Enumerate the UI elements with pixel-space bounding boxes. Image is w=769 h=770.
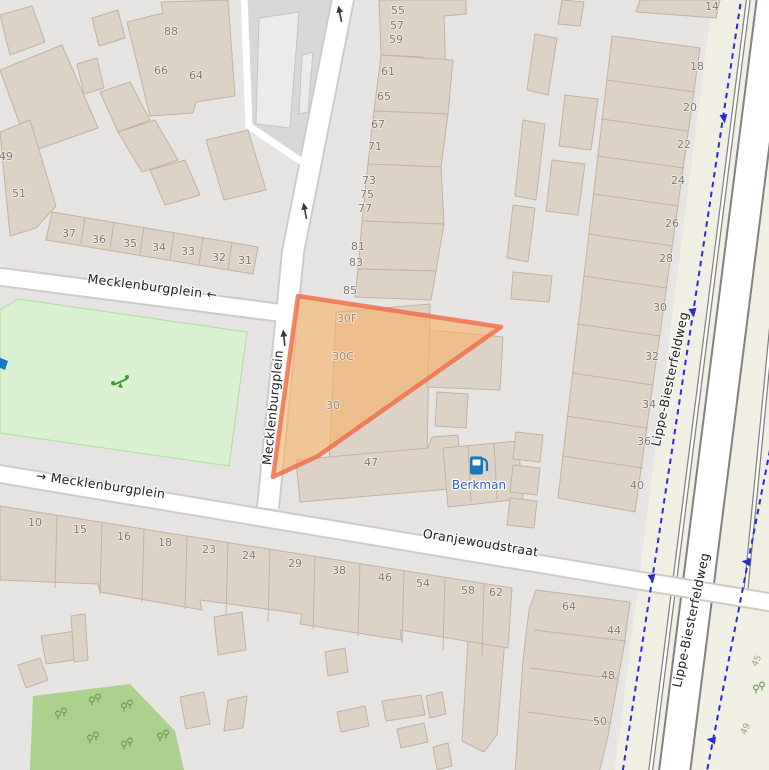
- house-number: 46: [378, 571, 392, 584]
- house-number: 32: [645, 350, 659, 363]
- building: [433, 743, 452, 770]
- house-number: 38: [332, 564, 346, 577]
- house-number: 40: [630, 479, 644, 492]
- building: [559, 95, 598, 150]
- house-number: 58: [461, 584, 475, 597]
- house-number: 30: [653, 301, 667, 314]
- house-number: 54: [416, 577, 430, 590]
- house-number: 31: [238, 254, 252, 267]
- house-number: 81: [351, 240, 365, 253]
- building: [426, 692, 446, 718]
- house-number: 37: [62, 227, 76, 240]
- building: [435, 392, 468, 428]
- house-number: 62: [489, 586, 503, 599]
- house-number: 51: [12, 187, 26, 200]
- house-number: 23: [202, 543, 216, 556]
- building: [214, 612, 246, 655]
- building: [358, 221, 444, 271]
- house-number: 33: [181, 245, 195, 258]
- house-number: 77: [358, 202, 372, 215]
- house-number: 48: [601, 669, 615, 682]
- house-number: 29: [288, 557, 302, 570]
- house-number: 49: [0, 150, 13, 163]
- building: [513, 432, 543, 462]
- building: [325, 648, 348, 676]
- building: [374, 55, 453, 114]
- house-number: 59: [389, 33, 403, 46]
- house-number: 14: [705, 0, 719, 13]
- map-canvas[interactable]: Berkman886664495137363534333231555759616…: [0, 0, 769, 770]
- house-number: 75: [360, 188, 374, 201]
- building: [180, 692, 210, 729]
- building: [558, 0, 584, 26]
- house-number: 18: [158, 536, 172, 549]
- house-number: 36: [92, 233, 106, 246]
- house-number: 28: [659, 252, 673, 265]
- building: [355, 269, 436, 300]
- house-number: 24: [671, 174, 685, 187]
- house-number: 15: [73, 523, 87, 536]
- house-number: 50: [593, 715, 607, 728]
- house-number: 66: [154, 64, 168, 77]
- house-number: 57: [390, 19, 404, 32]
- building: [71, 614, 88, 662]
- house-number: 88: [164, 25, 178, 38]
- house-number: 30C: [332, 350, 354, 363]
- house-number: 83: [349, 256, 363, 269]
- house-number: 22: [677, 138, 691, 151]
- house-number: 10: [28, 516, 42, 529]
- building: [511, 272, 552, 302]
- house-number: 64: [189, 69, 203, 82]
- house-number: 67: [371, 118, 385, 131]
- house-number: 65: [377, 90, 391, 103]
- house-number: 20: [683, 101, 697, 114]
- house-number: 55: [391, 4, 405, 17]
- house-number: 26: [665, 217, 679, 230]
- house-number: 16: [117, 530, 131, 543]
- building: [362, 164, 444, 224]
- house-number: 85: [343, 284, 357, 297]
- map-viewport[interactable]: Berkman886664495137363534333231555759616…: [0, 0, 769, 770]
- house-number: 34: [642, 398, 656, 411]
- house-number: 71: [368, 140, 382, 153]
- house-number: 24: [242, 549, 256, 562]
- house-number: 64: [562, 600, 576, 613]
- house-number: 35: [123, 237, 137, 250]
- building: [546, 160, 585, 215]
- house-number: 61: [381, 65, 395, 78]
- house-number: 34: [152, 241, 166, 254]
- house-number: 47: [364, 456, 378, 469]
- house-number: 18: [690, 60, 704, 73]
- house-number: 30F: [337, 312, 357, 325]
- building: [443, 441, 523, 507]
- house-number: 30: [326, 399, 340, 412]
- house-number: 73: [362, 174, 376, 187]
- house-number: 44: [607, 624, 621, 637]
- fuel-station-label: Berkman: [452, 478, 506, 492]
- building: [507, 498, 537, 528]
- building: [224, 696, 247, 731]
- house-number: 32: [212, 251, 226, 264]
- building: [510, 465, 540, 495]
